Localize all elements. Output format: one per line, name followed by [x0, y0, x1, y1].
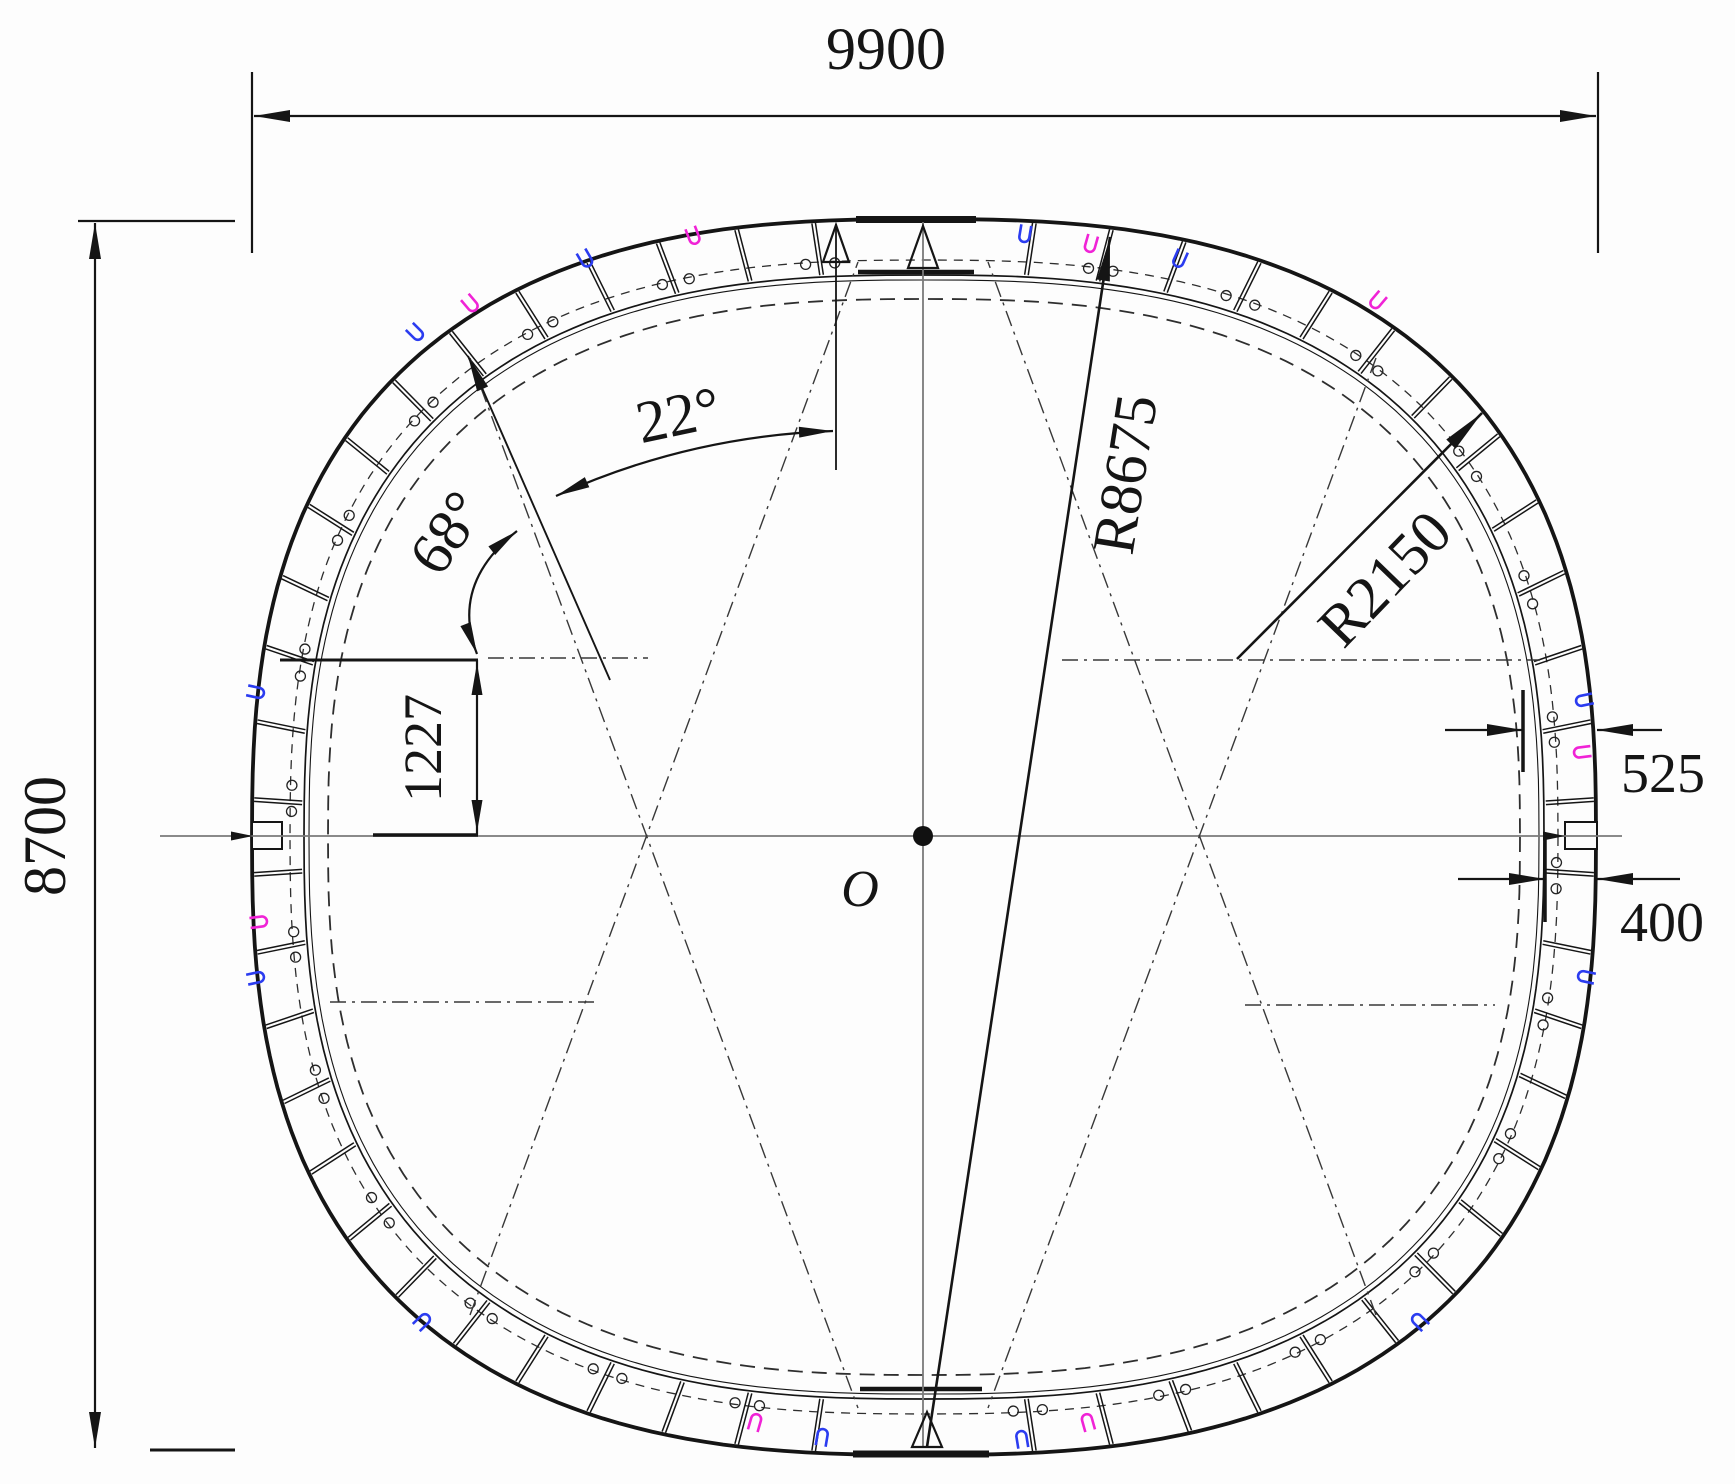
dimension-texts: 9900 8700 1227 22° 68° R8675 R2150 525 4… — [12, 16, 1705, 954]
radius-crown-label: R8675 — [1080, 390, 1170, 558]
angle-22-label: 22° — [630, 374, 726, 456]
dim-width-label: 9900 — [826, 16, 946, 82]
dim-offset-label: 1227 — [393, 694, 453, 802]
construction-lines — [330, 262, 1540, 1408]
dimension-lines — [78, 72, 1680, 1450]
radius-corner-label: R2150 — [1305, 498, 1464, 659]
dim-height-label: 8700 — [12, 776, 78, 896]
dim-525-label: 525 — [1621, 743, 1705, 805]
tunnel-cross-section-drawing: 9900 8700 1227 22° 68° R8675 R2150 525 4… — [0, 0, 1735, 1484]
dim-400-label: 400 — [1620, 892, 1704, 954]
center-point-label: O — [841, 861, 879, 918]
drawing-sheet: 9900 8700 1227 22° 68° R8675 R2150 525 4… — [0, 0, 1735, 1484]
